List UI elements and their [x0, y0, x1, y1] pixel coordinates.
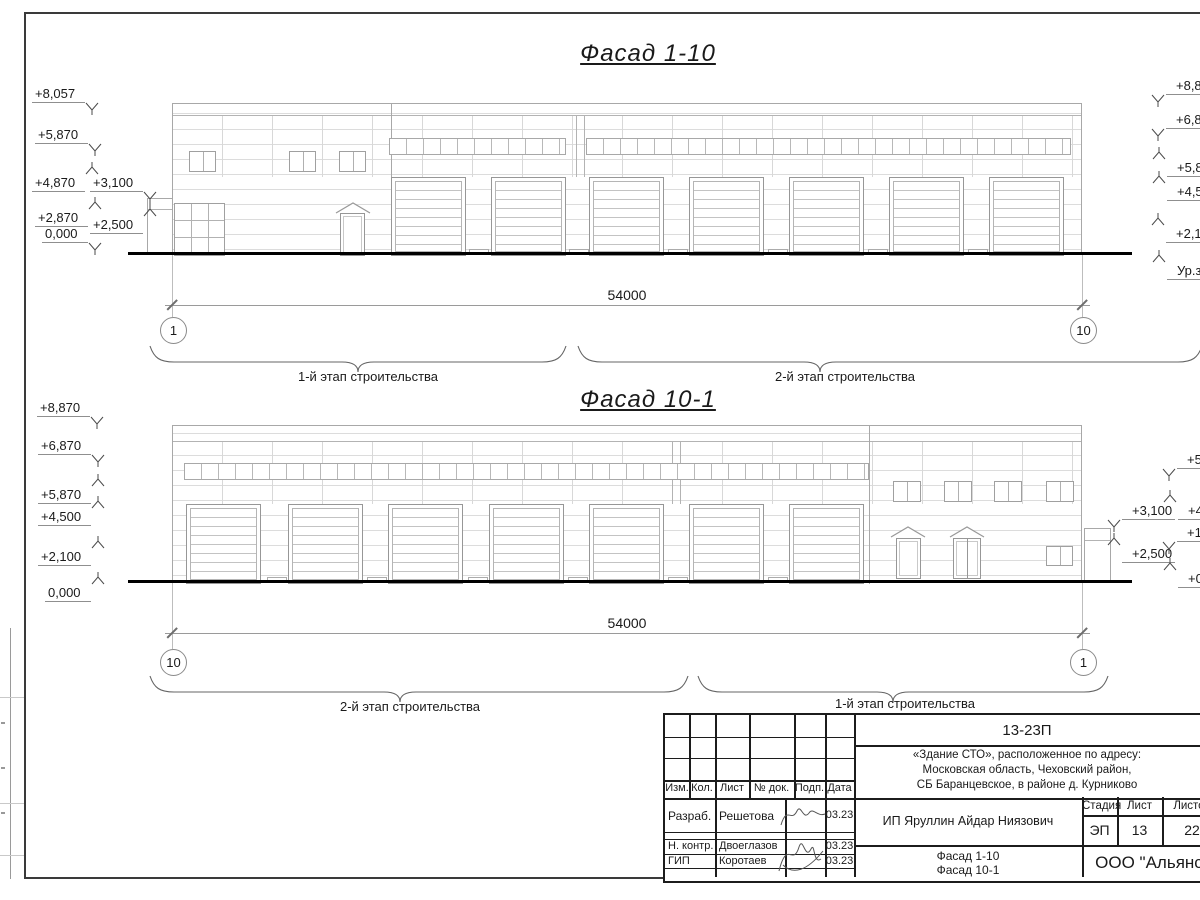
elevation-value: +2,100: [38, 549, 91, 566]
level-mark-icon: [91, 496, 105, 510]
sign-role: ГИП: [668, 855, 690, 867]
garage-door: [186, 504, 261, 584]
elevation-value: +5,870: [35, 127, 88, 144]
elevation-value: +4,500: [38, 509, 91, 526]
margin-strip-text: [1, 812, 5, 814]
level-mark-icon: [1162, 467, 1176, 481]
elevation-mark: +6,870: [38, 438, 91, 455]
sign-date: 03.23: [825, 809, 854, 821]
garage-door: [589, 177, 664, 256]
window: [289, 151, 316, 172]
dimension-line: [165, 305, 1090, 306]
sheet-value: 13: [1117, 822, 1162, 838]
level-mark-icon: [1152, 147, 1166, 161]
elevation-mark: +3,100: [90, 175, 143, 192]
frame-top: [24, 12, 1200, 14]
drawing-name-line: Фасад 1-10: [854, 849, 1082, 863]
elevation-value: +5,870: [38, 487, 91, 504]
elevation-mark: +4,870: [32, 175, 85, 192]
stamp-line: [854, 845, 1200, 847]
ribbon-window: [184, 463, 869, 480]
level-mark-icon: [91, 536, 105, 550]
expansion-joint: [584, 115, 585, 177]
stage-header: Стадия: [1082, 800, 1117, 812]
elevation-mark: +5,870: [38, 487, 91, 504]
elevation-value: +0,8: [1178, 571, 1200, 588]
elevation-value: +4,870: [32, 175, 85, 192]
elevation-mark: +4,50: [1167, 184, 1200, 201]
level-mark-icon: [1151, 127, 1165, 141]
entry-door: [340, 213, 365, 256]
elevation-mark: +0,8: [1178, 571, 1200, 588]
elevation-value: +6,870: [38, 438, 91, 455]
elevation-mark: +8,057: [32, 86, 85, 103]
level-mark-icon: [91, 453, 105, 467]
level-mark-icon: [88, 241, 102, 255]
stage-value: ЭП: [1082, 822, 1117, 838]
extension-line: [1082, 583, 1083, 649]
elevation-value: +2,500: [90, 217, 143, 234]
col-header: Лист: [715, 782, 749, 794]
doc-number: 13-23П: [854, 722, 1200, 739]
col-header: Изм.: [665, 782, 689, 794]
garage-door: [889, 177, 964, 256]
window: [944, 481, 972, 502]
elevation-mark: +2,500: [90, 217, 143, 234]
elevation-value: 0,000: [42, 226, 88, 243]
garage-door: [288, 504, 363, 584]
sign-name: Решетова: [719, 809, 774, 823]
margin-strip-text: [1, 722, 5, 724]
level-mark-icon: [143, 204, 157, 218]
level-mark-icon: [91, 572, 105, 586]
elevation-mark: +2,10: [1166, 226, 1200, 243]
level-mark-icon: [1152, 250, 1166, 264]
level-mark-icon: [85, 101, 99, 115]
stage-label: 2-й этап строительства: [280, 699, 540, 714]
elevation-value: +1,8: [1177, 525, 1200, 542]
elevation-value: +2,10: [1166, 226, 1200, 243]
door-canopy: [949, 525, 985, 538]
elevation-value: +8,870: [37, 400, 90, 417]
elevation-mark: +5,870: [35, 127, 88, 144]
ribbon-window: [389, 138, 566, 155]
elevation-mark: +3,100: [1122, 503, 1175, 520]
col-header: № док.: [749, 782, 794, 794]
expansion-joint: [576, 115, 577, 177]
garage-door: [388, 504, 463, 584]
garage-door: [689, 177, 764, 256]
elevation-value: +3,100: [1122, 503, 1175, 520]
stamp-line: [665, 758, 854, 759]
elevation-value: +2,870: [35, 210, 88, 227]
level-mark-icon: [1152, 171, 1166, 185]
garage-door: [789, 177, 864, 256]
elevation-value: +4,50: [1167, 184, 1200, 201]
door-canopy: [890, 525, 926, 538]
level-mark-icon: [1151, 93, 1165, 107]
window: [1046, 546, 1073, 566]
elevation-mark: +4,500: [38, 509, 91, 526]
parapet-line: [173, 441, 1081, 442]
elevation-value: +4,8: [1178, 503, 1200, 520]
col-header: Дата: [825, 782, 854, 794]
level-mark-icon: [91, 474, 105, 488]
elevation-mark: +5,8: [1177, 452, 1200, 469]
elevation-value: +8,057: [32, 86, 85, 103]
window: [339, 151, 366, 172]
client-name: ИП Яруллин Айдар Ниязович: [854, 814, 1082, 828]
dimension-label: 54000: [172, 287, 1082, 303]
level-mark-icon: [1107, 518, 1121, 532]
level-mark-icon: [143, 190, 157, 204]
level-mark-icon: [85, 162, 99, 176]
margin-strip-line: [0, 697, 24, 698]
facade2-title: Фасад 10-1: [518, 386, 778, 414]
level-mark-icon: [1163, 490, 1177, 504]
margin-strip-line: [0, 803, 24, 804]
stamp-line: [715, 715, 717, 877]
elevation-value: +5,8: [1177, 452, 1200, 469]
margin-strip-line: [0, 855, 24, 856]
level-mark-icon: [1163, 558, 1177, 572]
window: [189, 151, 216, 172]
elevation-mark: +6,870: [1166, 112, 1200, 129]
level-mark-icon: [88, 197, 102, 211]
stage-label: 1-й этап строительства: [775, 696, 1035, 711]
elevation-mark: +8,870: [37, 400, 90, 417]
garage-door: [989, 177, 1064, 256]
elevation-mark: +2,870: [35, 210, 88, 227]
axis-bubble: 1: [160, 317, 187, 344]
signature: [777, 801, 829, 831]
garage-door: [789, 504, 864, 584]
company-name: ООО "Альянс": [1082, 853, 1200, 873]
ribbon-window: [586, 138, 1071, 155]
section-boundary: [869, 426, 870, 584]
garage-door: [589, 504, 664, 584]
garage-door: [489, 504, 564, 584]
title-block: Изм. Кол. Лист № док. Подп. Дата Разраб.…: [663, 713, 1200, 883]
drawing-name-line: Фасад 10-1: [854, 863, 1082, 877]
window: [893, 481, 921, 502]
window: [1046, 481, 1074, 502]
elevation-value: +5,87: [1167, 160, 1200, 177]
stage-label: 1-й этап строительства: [238, 369, 498, 384]
entry-door: [896, 538, 921, 579]
sign-role: Н. контр.: [668, 840, 713, 852]
col-header: Подп.: [794, 782, 825, 794]
window: [994, 481, 1022, 502]
elevation-mark: +2,100: [38, 549, 91, 566]
level-mark-icon: [1107, 533, 1121, 547]
sign-role: Разраб.: [668, 809, 711, 823]
margin-strip-line: [10, 628, 11, 879]
stamp-line: [1082, 815, 1200, 817]
sheets-header: Листов: [1162, 800, 1200, 812]
col-header: Кол.: [689, 782, 715, 794]
level-mark-icon: [88, 142, 102, 156]
elevation-mark: 0,000: [42, 226, 88, 243]
garage-door: [491, 177, 566, 256]
elevation-value: 0,000: [45, 585, 91, 602]
facade2-ground-line: [128, 580, 1132, 583]
elevation-mark: +8,870: [1166, 78, 1200, 95]
elevation-value: +6,870: [1166, 112, 1200, 129]
signature: [773, 831, 833, 879]
garage-door: [391, 177, 466, 256]
facade1-drawing: [172, 103, 1082, 255]
elevation-mark: +1,8: [1177, 525, 1200, 542]
project-address-line: Московская область, Чеховский район,: [854, 764, 1200, 776]
extension-line: [1082, 255, 1083, 317]
stage-label: 2-й этап строительства: [715, 369, 975, 384]
drawing-sheet: { "facade1": { "title": "Фасад 1-10", "d…: [0, 0, 1200, 900]
parapet-line: [173, 115, 1081, 116]
sheet-header: Лист: [1117, 800, 1162, 812]
frame-left: [24, 12, 26, 879]
level-mark-icon: [1151, 213, 1165, 227]
level-mark-icon: [90, 415, 104, 429]
stamp-line: [665, 737, 854, 738]
level-mark-icon: [1162, 540, 1176, 554]
sign-name: Коротаев: [719, 855, 767, 867]
sheets-value: 22: [1162, 822, 1200, 838]
sign-name: Двоеглазов: [719, 840, 777, 852]
facade1-title: Фасад 1-10: [518, 40, 778, 68]
entry-door-double: [953, 538, 981, 579]
dimension-line: [165, 633, 1090, 634]
elevation-mark: 0,000: [45, 585, 91, 602]
elevation-value: +3,100: [90, 175, 143, 192]
margin-strip-text: [1, 767, 5, 769]
project-address-line: «Здание СТО», расположенное по адресу:: [854, 749, 1200, 761]
glazed-entrance: [174, 203, 225, 256]
elevation-mark: Ур.зе: [1167, 263, 1200, 280]
axis-bubble: 10: [1070, 317, 1097, 344]
extension-line: [172, 255, 173, 317]
elevation-mark: +5,87: [1167, 160, 1200, 177]
facade2-drawing: [172, 425, 1082, 583]
dimension-label: 54000: [172, 615, 1082, 631]
garage-door: [689, 504, 764, 584]
elevation-value: Ур.зе: [1167, 263, 1200, 280]
facade1-ground-line: [128, 252, 1132, 255]
stamp-line: [854, 745, 1200, 747]
elevation-value: +8,870: [1166, 78, 1200, 95]
project-address-line: СБ Баранцевское, в районе д. Курниково: [854, 779, 1200, 791]
elevation-mark: +4,8: [1178, 503, 1200, 520]
